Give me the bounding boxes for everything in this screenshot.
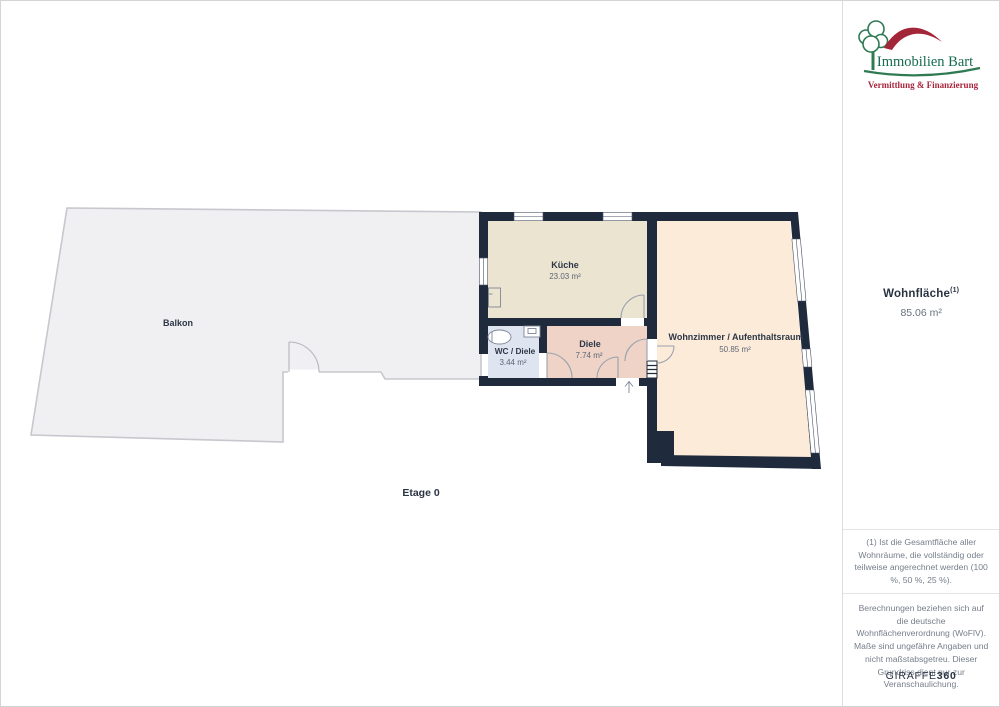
label-kueche: Küche <box>551 260 579 270</box>
area-wc: 3.44 m² <box>499 358 526 367</box>
interior-window-striped <box>647 361 657 378</box>
balkon-gate-opening <box>288 370 319 375</box>
balkon-floor <box>31 208 481 442</box>
divider-top <box>843 529 999 530</box>
living-area-label: Wohnfläche(1) <box>843 287 999 300</box>
tree-icon <box>859 21 888 52</box>
wc-cistern-icon <box>524 326 540 337</box>
floorplan-canvas: Balkon Küche 23.03 m² WC / Diele 3.44 m²… <box>1 1 842 706</box>
info-sidebar: Immobilien Bart Vermittlung & Finanzieru… <box>842 1 999 706</box>
footnote-text: (1) Ist die Gesamtfläche aller Wohnräume… <box>843 536 999 587</box>
room-balkon <box>31 208 481 442</box>
brand-tagline: Vermittlung & Finanzierung <box>868 80 979 90</box>
living-area-block: Wohnfläche(1) 85.06 m² <box>843 287 999 319</box>
label-diele: Diele <box>579 339 601 349</box>
kueche-counter <box>489 288 501 307</box>
label-wc: WC / Diele <box>495 346 536 356</box>
wc-washbasin-icon <box>488 330 511 344</box>
area-kueche: 23.03 m² <box>549 272 581 281</box>
label-balkon: Balkon <box>163 318 193 328</box>
brand-name: Immobilien Bart <box>877 54 973 70</box>
living-area-value: 85.06 m² <box>843 307 999 319</box>
wall-bottom <box>661 455 821 469</box>
brand-logo-graphic: Immobilien Bart Vermittlung & Finanzieru… <box>854 13 988 97</box>
floor-label: Etage 0 <box>402 487 440 499</box>
roof-icon <box>884 28 942 50</box>
brand-logo: Immobilien Bart Vermittlung & Finanzieru… <box>843 13 999 102</box>
giraffe360-logo: GIRAFFE360 <box>843 670 999 682</box>
floorplan-drawing: Balkon Küche 23.03 m² WC / Diele 3.44 m²… <box>1 1 842 706</box>
footnote-marker: (1) <box>950 287 959 294</box>
area-diele: 7.74 m² <box>575 351 602 360</box>
entrance-arrow-icon <box>625 382 633 394</box>
label-wohnzimmer: Wohnzimmer / Aufenthaltsraum <box>668 332 803 342</box>
floorplan-page: Balkon Küche 23.03 m² WC / Diele 3.44 m²… <box>0 0 1000 707</box>
divider-bottom <box>843 593 999 594</box>
area-wohnzimmer: 50.85 m² <box>719 345 751 354</box>
